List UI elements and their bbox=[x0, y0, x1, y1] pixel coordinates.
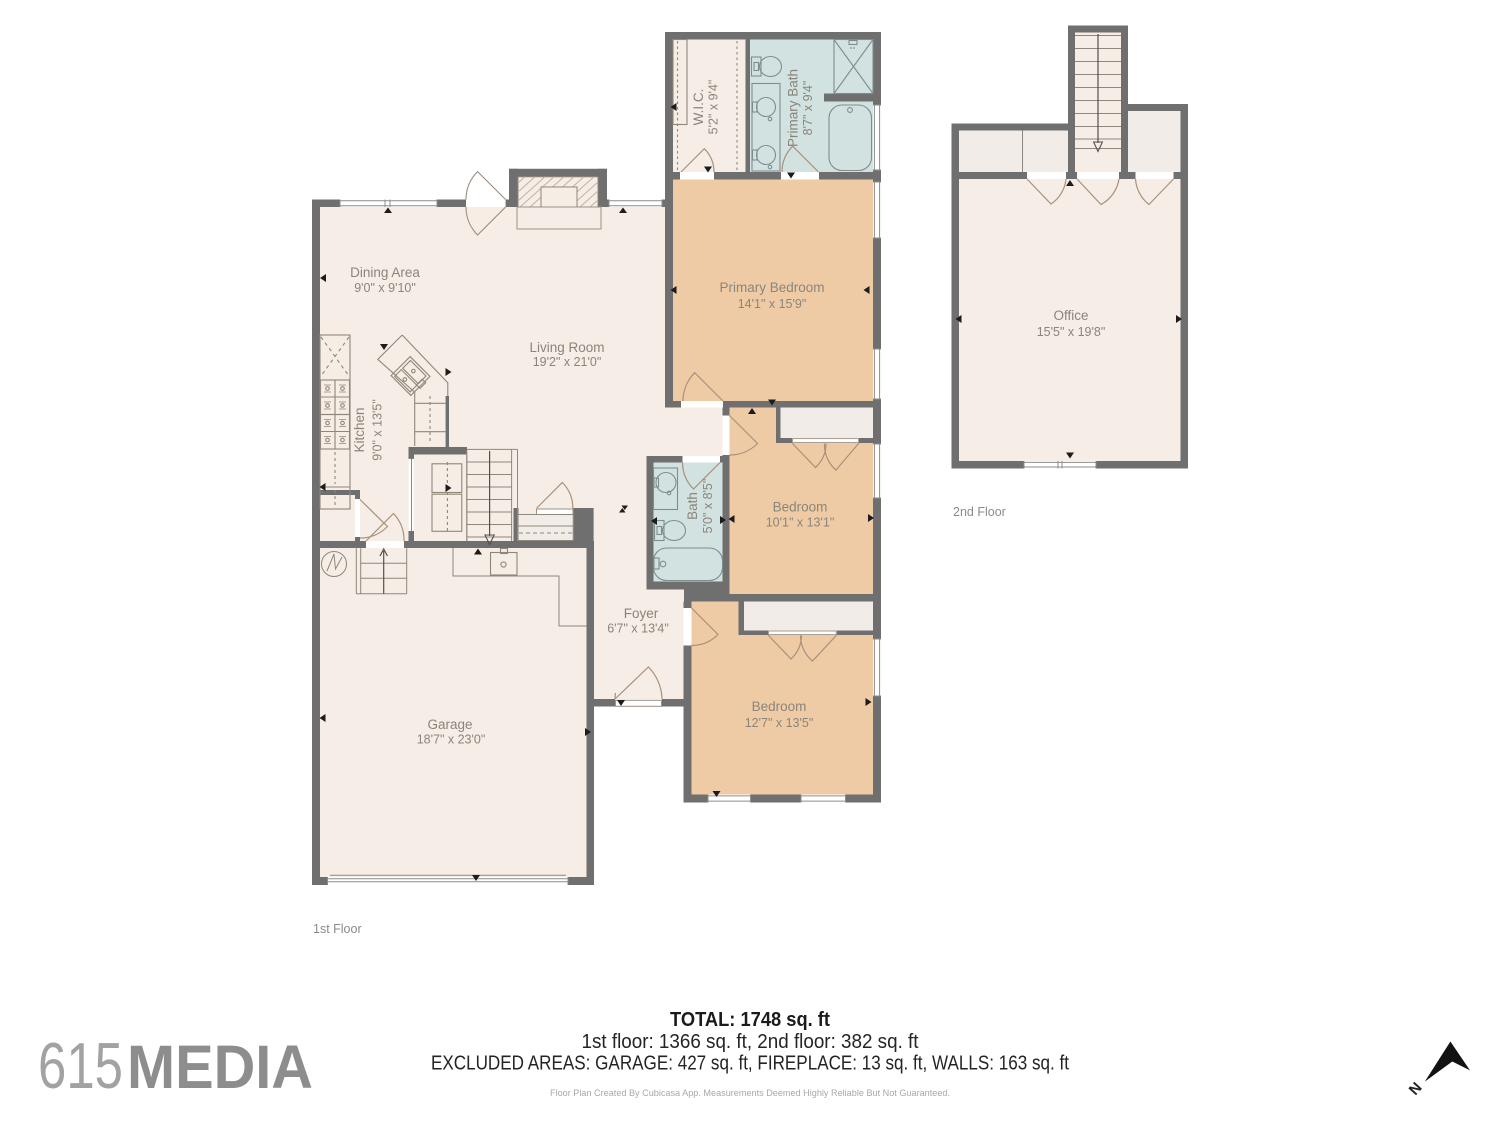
svg-text:Garage: Garage bbox=[427, 717, 472, 732]
svg-text:5'0" x 8'5": 5'0" x 8'5" bbox=[701, 479, 715, 534]
svg-text:Dining Area: Dining Area bbox=[350, 265, 420, 280]
svg-text:18'7" x 23'0": 18'7" x 23'0" bbox=[417, 733, 486, 747]
svg-text:9'0" x 9'10": 9'0" x 9'10" bbox=[354, 281, 416, 295]
svg-text:MEDIA: MEDIA bbox=[127, 1033, 313, 1101]
svg-text:615: 615 bbox=[38, 1029, 123, 1102]
svg-text:Foyer: Foyer bbox=[624, 606, 659, 621]
svg-text:9'0" x 13'5": 9'0" x 13'5" bbox=[371, 399, 385, 461]
svg-text:TOTAL: 1748 sq. ft: TOTAL: 1748 sq. ft bbox=[670, 1009, 830, 1031]
svg-text:Bedroom: Bedroom bbox=[773, 500, 828, 515]
svg-text:2nd Floor: 2nd Floor bbox=[953, 505, 1006, 519]
svg-text:Primary Bedroom: Primary Bedroom bbox=[719, 280, 824, 295]
svg-text:14'1" x 15'9": 14'1" x 15'9" bbox=[738, 297, 807, 311]
svg-text:W.I.C.: W.I.C. bbox=[691, 89, 706, 126]
svg-text:Primary Bath: Primary Bath bbox=[786, 69, 801, 147]
svg-text:15'5" x 19'8": 15'5" x 19'8" bbox=[1037, 325, 1106, 339]
svg-text:Living Room: Living Room bbox=[529, 340, 604, 355]
svg-text:EXCLUDED AREAS: GARAGE: 427 sq: EXCLUDED AREAS: GARAGE: 427 sq. ft, FIRE… bbox=[431, 1053, 1069, 1075]
svg-text:19'2" x 21'0": 19'2" x 21'0" bbox=[533, 355, 602, 369]
svg-text:Bath: Bath bbox=[685, 492, 700, 520]
svg-text:12'7" x 13'5": 12'7" x 13'5" bbox=[745, 716, 814, 730]
svg-text:1st floor: 1366 sq. ft, 2nd fl: 1st floor: 1366 sq. ft, 2nd floor: 382 s… bbox=[582, 1031, 919, 1053]
svg-text:Office: Office bbox=[1053, 308, 1088, 323]
svg-text:5'2" x 9'4": 5'2" x 9'4" bbox=[707, 80, 721, 135]
svg-text:Kitchen: Kitchen bbox=[352, 407, 367, 452]
svg-text:10'1" x 13'1": 10'1" x 13'1" bbox=[766, 516, 835, 530]
svg-text:Floor Plan Created By Cubicasa: Floor Plan Created By Cubicasa App. Meas… bbox=[550, 1088, 950, 1099]
svg-text:1st Floor: 1st Floor bbox=[313, 922, 362, 936]
svg-text:6'7" x 13'4": 6'7" x 13'4" bbox=[607, 622, 669, 636]
svg-text:Bedroom: Bedroom bbox=[752, 699, 807, 714]
svg-text:8'7" x 9'4": 8'7" x 9'4" bbox=[801, 81, 815, 136]
